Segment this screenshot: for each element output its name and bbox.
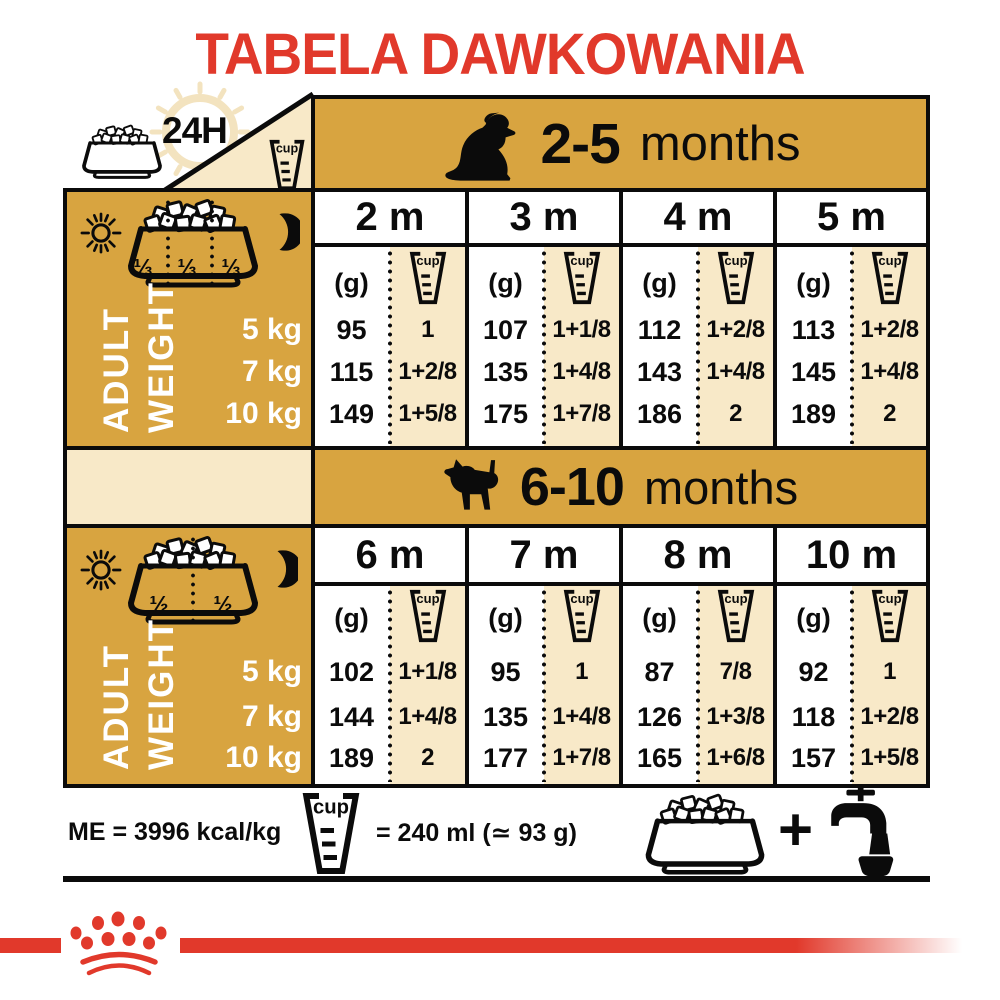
g-value: 135 [469, 356, 542, 388]
measuring-cup-icon [868, 250, 912, 306]
g-value: 157 [777, 742, 850, 774]
grams-unit: (g) [315, 268, 388, 299]
g-value: 87 [623, 656, 696, 688]
data-cell-3m: (g) 107 1+1/8 135 1+4/8 175 1+7/8 [469, 247, 619, 446]
cup-value: 1+2/8 [700, 314, 771, 346]
cup-value: 1 [854, 656, 925, 688]
month-header: 5 m [777, 192, 926, 243]
portion-fraction: ⅓ [171, 254, 203, 281]
data-cell-10m: (g) 92 1 118 1+2/8 157 1+5/8 [777, 586, 926, 784]
cup-value: 1+7/8 [546, 742, 617, 774]
g-value: 113 [777, 314, 850, 346]
cup-value: 1+2/8 [392, 356, 463, 388]
cup-value: 2 [854, 398, 925, 430]
red-bar-right [180, 938, 970, 953]
feeding-table-page: TABELA DAWKOWANIA 24H 2-5 months ⅓ ⅓ ⅓ A… [0, 0, 1000, 1000]
adult-weight-label: ADULT [99, 644, 137, 770]
measuring-cup-icon [406, 250, 450, 306]
weight-row-label: 5 kg [176, 314, 302, 346]
measuring-cup-icon [868, 588, 912, 644]
portion-fraction: ½ [207, 591, 239, 618]
g-value: 175 [469, 398, 542, 430]
portion-fraction: ⅓ [127, 254, 159, 281]
water-tap-icon [818, 786, 910, 881]
measuring-cup-icon [266, 138, 308, 192]
g-value: 102 [315, 656, 388, 688]
month-header: 2 m [315, 192, 465, 243]
g-value: 126 [623, 701, 696, 733]
grams-unit: (g) [315, 603, 388, 634]
plus-icon: + [778, 800, 813, 860]
moon-icon [271, 213, 300, 251]
sitting-puppy-icon [440, 111, 520, 183]
cup-value: 1+4/8 [546, 701, 617, 733]
g-value: 144 [315, 701, 388, 733]
standing-puppy-icon [443, 456, 500, 521]
cup-value: 1 [546, 656, 617, 688]
g-value: 112 [623, 314, 696, 346]
portion-divider-dash [191, 535, 195, 621]
month-header: 10 m [777, 528, 926, 582]
cup-value: 1+3/8 [700, 701, 771, 733]
g-value: 165 [623, 742, 696, 774]
cup-value: 1+2/8 [854, 701, 925, 733]
grams-unit: (g) [623, 268, 696, 299]
cup-value: 2 [392, 742, 463, 774]
data-cell-4m: (g) 112 1+2/8 143 1+4/8 186 2 [623, 247, 773, 446]
sun-icon [80, 212, 122, 254]
data-cell-5m: (g) 113 1+2/8 145 1+4/8 189 2 [777, 247, 926, 446]
portion-divider-dash [210, 198, 214, 284]
weight-row-label: 10 kg [176, 742, 302, 774]
cup-value: 1+6/8 [700, 742, 771, 774]
g-value: 189 [315, 742, 388, 774]
month-header: 6 m [315, 528, 465, 582]
data-cell-2m: (g) 95 1 115 1+2/8 149 1+5/8 [315, 247, 465, 446]
age-months-word: months [640, 116, 801, 172]
age-band-2-5: 2-5 months [315, 99, 926, 188]
g-value: 135 [469, 701, 542, 733]
age-band-6-10: 6-10 months [315, 450, 926, 524]
data-cell-7m: (g) 95 1 135 1+4/8 177 1+7/8 [469, 586, 619, 784]
g-value: 145 [777, 356, 850, 388]
g-value: 107 [469, 314, 542, 346]
age-range: 6-10 [520, 456, 624, 518]
cup-equivalence-text: = 240 ml (≃ 93 g) [376, 818, 577, 848]
portion-fraction: ⅓ [215, 254, 247, 281]
measuring-cup-icon [560, 250, 604, 306]
band2-empty-cell [67, 450, 311, 524]
month-header: 7 m [469, 528, 619, 582]
portion-fraction: ½ [143, 591, 175, 618]
sun-icon [80, 549, 122, 591]
cup-value: 1 [392, 314, 463, 346]
g-value: 115 [315, 356, 388, 388]
age-months-word: months [644, 460, 798, 515]
cup-value: 1+4/8 [392, 701, 463, 733]
data-cell-8m: (g) 87 7/8 126 1+3/8 165 1+6/8 [623, 586, 773, 784]
month-header: 4 m [623, 192, 773, 243]
data-cell-6m: (g) 102 1+1/8 144 1+4/8 189 2 [315, 586, 465, 784]
food-bowl-icon [630, 791, 780, 875]
g-value: 143 [623, 356, 696, 388]
cup-value: 1+2/8 [854, 314, 925, 346]
measuring-cup-icon [714, 250, 758, 306]
g-value: 186 [623, 398, 696, 430]
measuring-cup-icon [298, 790, 364, 877]
cup-value: 1+5/8 [392, 398, 463, 430]
cup-value: 7/8 [700, 656, 771, 688]
g-value: 118 [777, 701, 850, 733]
grams-unit: (g) [469, 603, 542, 634]
g-value: 189 [777, 398, 850, 430]
grams-unit: (g) [469, 268, 542, 299]
weight-row-label: 10 kg [176, 398, 302, 430]
cup-value: 1+4/8 [700, 356, 771, 388]
royal-canin-crown-icon [55, 898, 175, 990]
measuring-cup-icon [560, 588, 604, 644]
cup-value: 1+4/8 [854, 356, 925, 388]
page-title: TABELA DAWKOWANIA [0, 20, 1000, 88]
g-value: 92 [777, 656, 850, 688]
age-range: 2-5 [540, 111, 619, 177]
g-value: 95 [315, 314, 388, 346]
weight-row-label: 7 kg [176, 356, 302, 388]
measuring-cup-icon [714, 588, 758, 644]
cup-value: 1+5/8 [854, 742, 925, 774]
red-bar-left [0, 938, 61, 953]
grams-unit: (g) [777, 268, 850, 299]
weight-row-label: 5 kg [176, 656, 302, 688]
grams-unit: (g) [777, 603, 850, 634]
portion-divider-dash [166, 198, 170, 284]
cup-value: 1+7/8 [546, 398, 617, 430]
adult-weight-label: ADULT [99, 307, 137, 433]
month-header: 8 m [623, 528, 773, 582]
bottom-rule [63, 876, 930, 882]
month-header: 3 m [469, 192, 619, 243]
cup-value: 1+4/8 [546, 356, 617, 388]
moon-icon [269, 550, 298, 588]
cup-value: 1+1/8 [392, 656, 463, 688]
metabolizable-energy-text: ME = 3996 kcal/kg [68, 818, 281, 847]
cup-value: 2 [700, 398, 771, 430]
g-value: 149 [315, 398, 388, 430]
weight-row-label: 7 kg [176, 701, 302, 733]
measuring-cup-icon [406, 588, 450, 644]
grams-unit: (g) [623, 603, 696, 634]
cup-value: 1+1/8 [546, 314, 617, 346]
g-value: 177 [469, 742, 542, 774]
g-value: 95 [469, 656, 542, 688]
